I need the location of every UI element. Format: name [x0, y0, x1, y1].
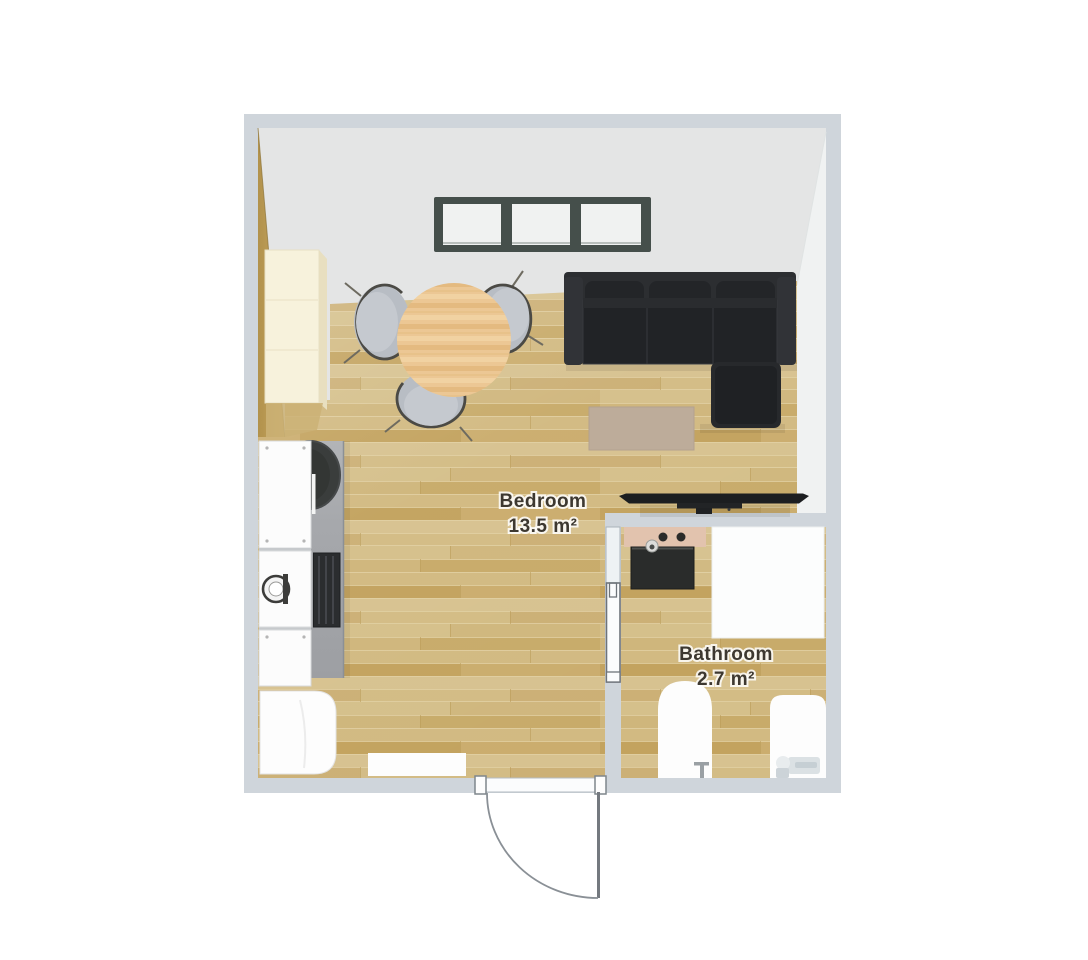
svg-text:2.7 m²: 2.7 m² — [697, 669, 755, 690]
svg-text:Bathroom: Bathroom — [679, 644, 773, 665]
svg-text:13.5 m²: 13.5 m² — [509, 516, 578, 537]
svg-text:Bedroom: Bedroom — [500, 491, 587, 512]
